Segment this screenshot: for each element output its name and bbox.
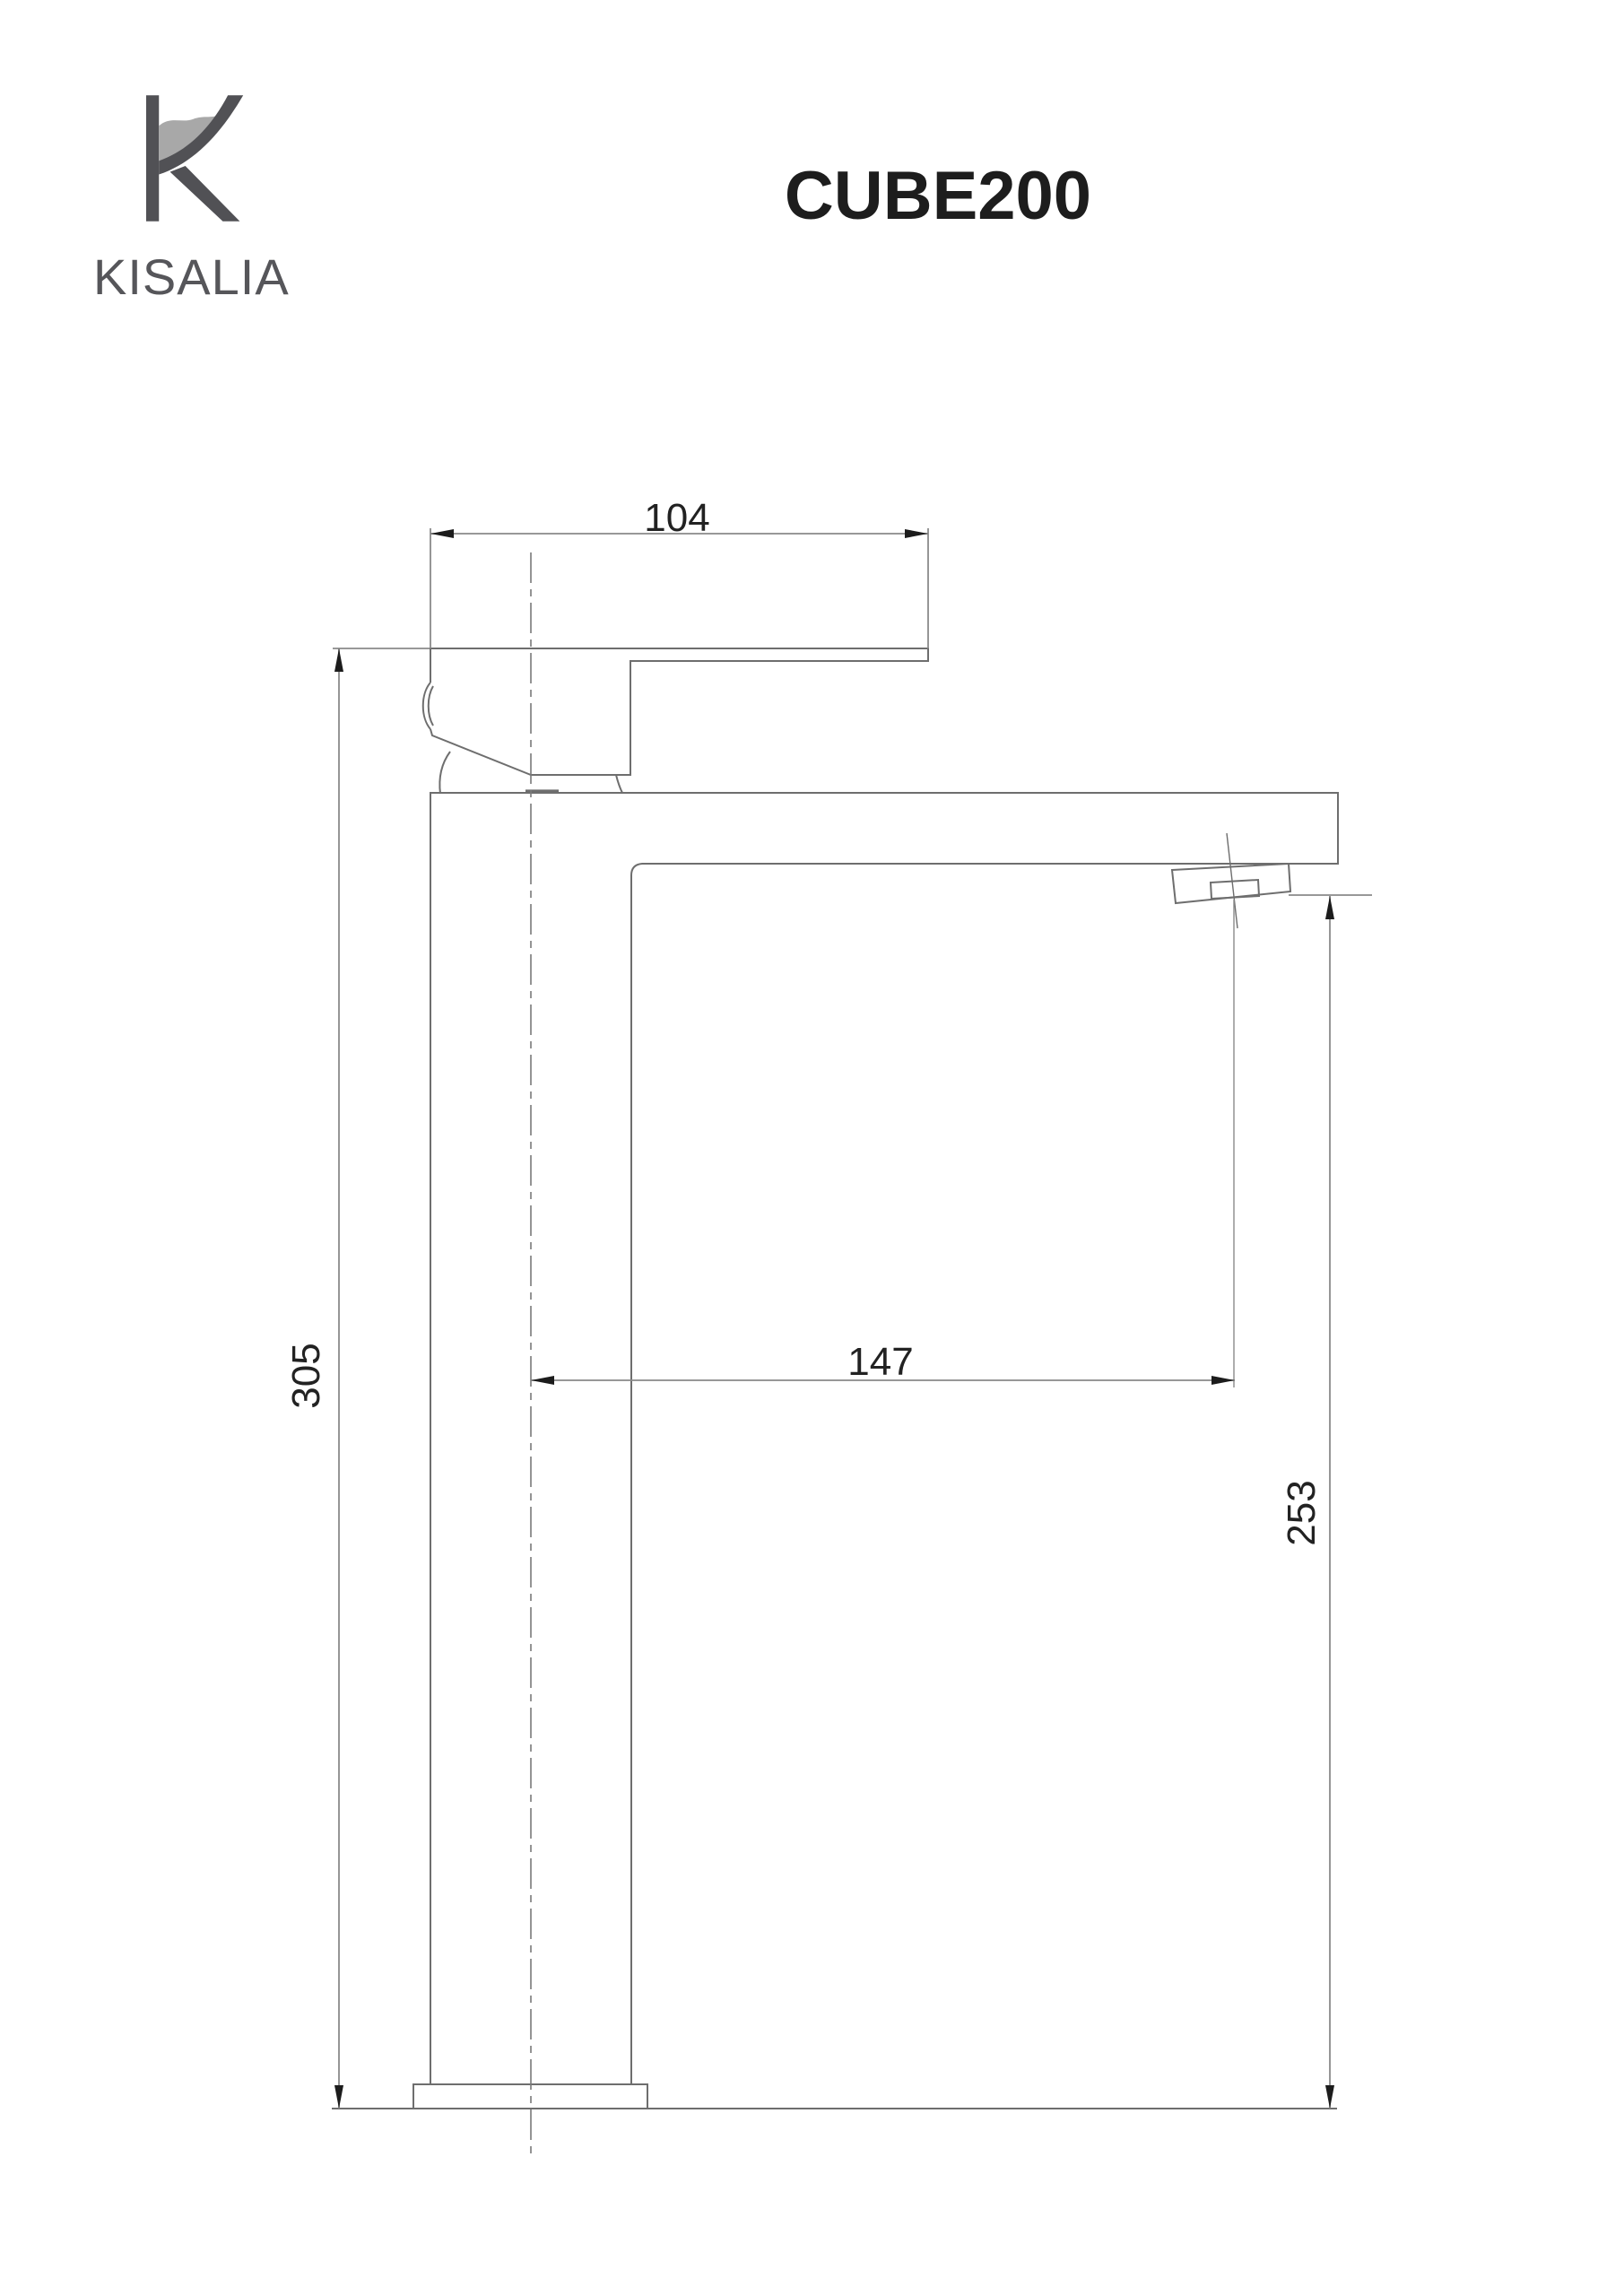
arrow-253-top [1325,896,1334,919]
body-and-spout-arm [430,793,1338,2084]
dim-label-104: 104 [644,496,709,540]
arrow-305-top [334,648,343,672]
dimension-arrowheads [334,529,1334,2109]
handle-base-left-fillet [439,752,450,794]
handle-cap-outer-arc [423,683,430,729]
aerator-outlet [1211,880,1259,899]
arrow-147-left [531,1376,554,1385]
faucet-outline [332,648,1338,2109]
arrow-104-left [430,529,454,538]
handle-cap-inner-arc [429,686,433,726]
arrow-305-bottom [334,2085,343,2109]
technical-drawing: 104 305 147 253 [0,0,1624,2296]
handle-base-right-fillet [616,775,622,793]
arrow-253-bottom [1325,2085,1334,2109]
dim-label-253: 253 [1280,1480,1324,1545]
dim-label-147: 147 [847,1340,913,1384]
arrow-147-right [1211,1376,1235,1385]
dim-label-305: 305 [284,1343,328,1408]
handle-lever-outline [430,648,928,775]
spec-sheet-page: KISALIA CUBE200 [0,0,1624,2296]
arrow-104-right [905,529,928,538]
dimension-lines [333,528,1372,2109]
